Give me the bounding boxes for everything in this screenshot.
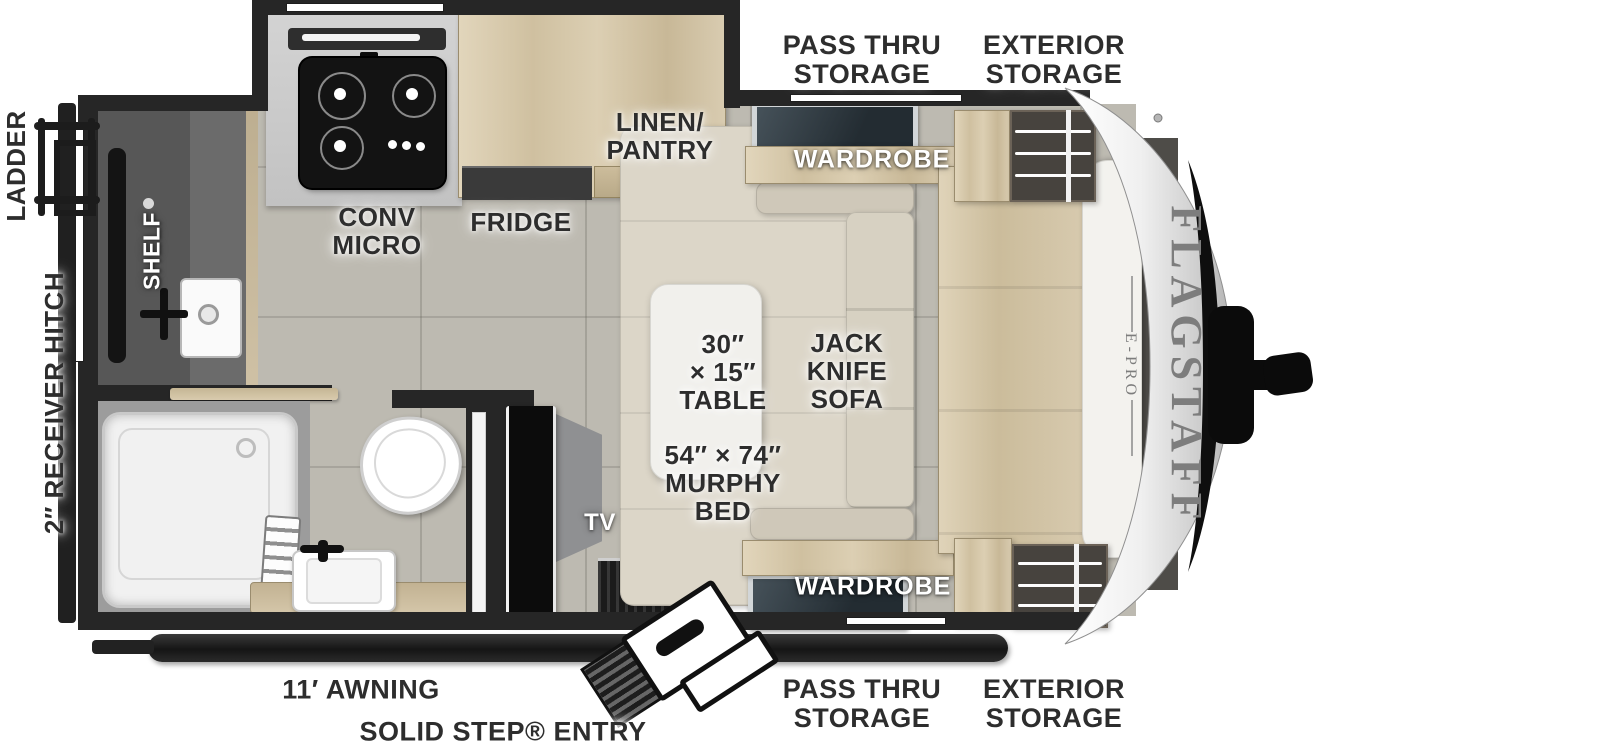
sofa-armrest-top [756,182,914,214]
galley-faucet-handle-icon [140,310,188,318]
label-table: 30″ × 15″ TABLE [679,330,766,414]
ladder-icon [30,112,104,218]
label-pass-thru-storage-bottom: PASS THRU STORAGE [783,675,942,733]
label-wardrobe-top: WARDROBE [794,147,951,174]
burner-center [334,140,346,152]
pocket-door [472,412,486,614]
propane-cover [1208,306,1254,444]
cooktop-knob-dot [402,141,411,150]
label-shelf: SHELF [140,212,165,290]
label-fridge: FRIDGE [470,208,571,236]
brand-sub: E-PRO [1122,333,1139,399]
label-pass-thru-storage-top: PASS THRU STORAGE [783,31,942,89]
tv-backing-panel [556,414,602,562]
label-wardrobe-bottom: WARDROBE [795,574,952,601]
label-exterior-storage-top: EXTERIOR STORAGE [983,31,1125,89]
label-conv-micro: CONV MICRO [332,203,421,259]
top-wall-left [78,95,264,111]
galley-sink-drain-icon [198,304,219,325]
front-cabinet-top [954,110,1010,202]
label-exterior-storage-bottom: EXTERIOR STORAGE [983,675,1125,733]
brand-logo: FLAGSTAFF [1162,205,1211,526]
burner-center [334,88,346,100]
cooktop-knob-dot [416,142,425,151]
range-hood-light [302,34,420,41]
label-ladder: LADDER [2,110,30,221]
vanity-faucet-knob-icon [318,540,328,562]
label-jack-knife-sofa: JACK KNIFE SOFA [807,329,888,413]
hitch-coupler [1261,351,1314,397]
label-receiver-hitch: 2″ RECEIVER HITCH [40,272,68,534]
fridge-front [462,166,592,200]
tub-drain-icon [236,438,256,458]
label-solid-step-entry: SOLID STEP® ENTRY [360,717,647,746]
awning-bracket [92,640,154,654]
tv-panel [506,406,556,624]
burner-center [406,88,418,100]
floor-plan-canvas: FLAGSTAFF E-PRO PASS THRU STORAGE EXTERI… [0,0,1600,746]
label-tv: TV [584,510,616,536]
label-awning: 11′ AWNING [282,675,440,704]
front-cap: FLAGSTAFF E-PRO [1040,70,1320,670]
galley-counter-overhang [170,388,338,400]
window-strip [286,3,444,12]
label-murphy-bed: 54″ × 74″ MURPHY BED [665,441,782,525]
galley-accent-trough [108,148,126,363]
window-strip [790,94,962,102]
window-strip [846,617,946,625]
label-linen-pantry: LINEN/ PANTRY [607,108,714,164]
cap-screw-icon [1154,114,1162,122]
rear-galley-wood-trim [246,104,258,394]
cooktop-knob-dot [388,140,397,149]
galley-knob-icon [143,198,154,209]
bumpout-wall-left [252,0,268,111]
wardrobe-cabinet-bottom [742,540,954,576]
vanity-basin [306,558,382,604]
